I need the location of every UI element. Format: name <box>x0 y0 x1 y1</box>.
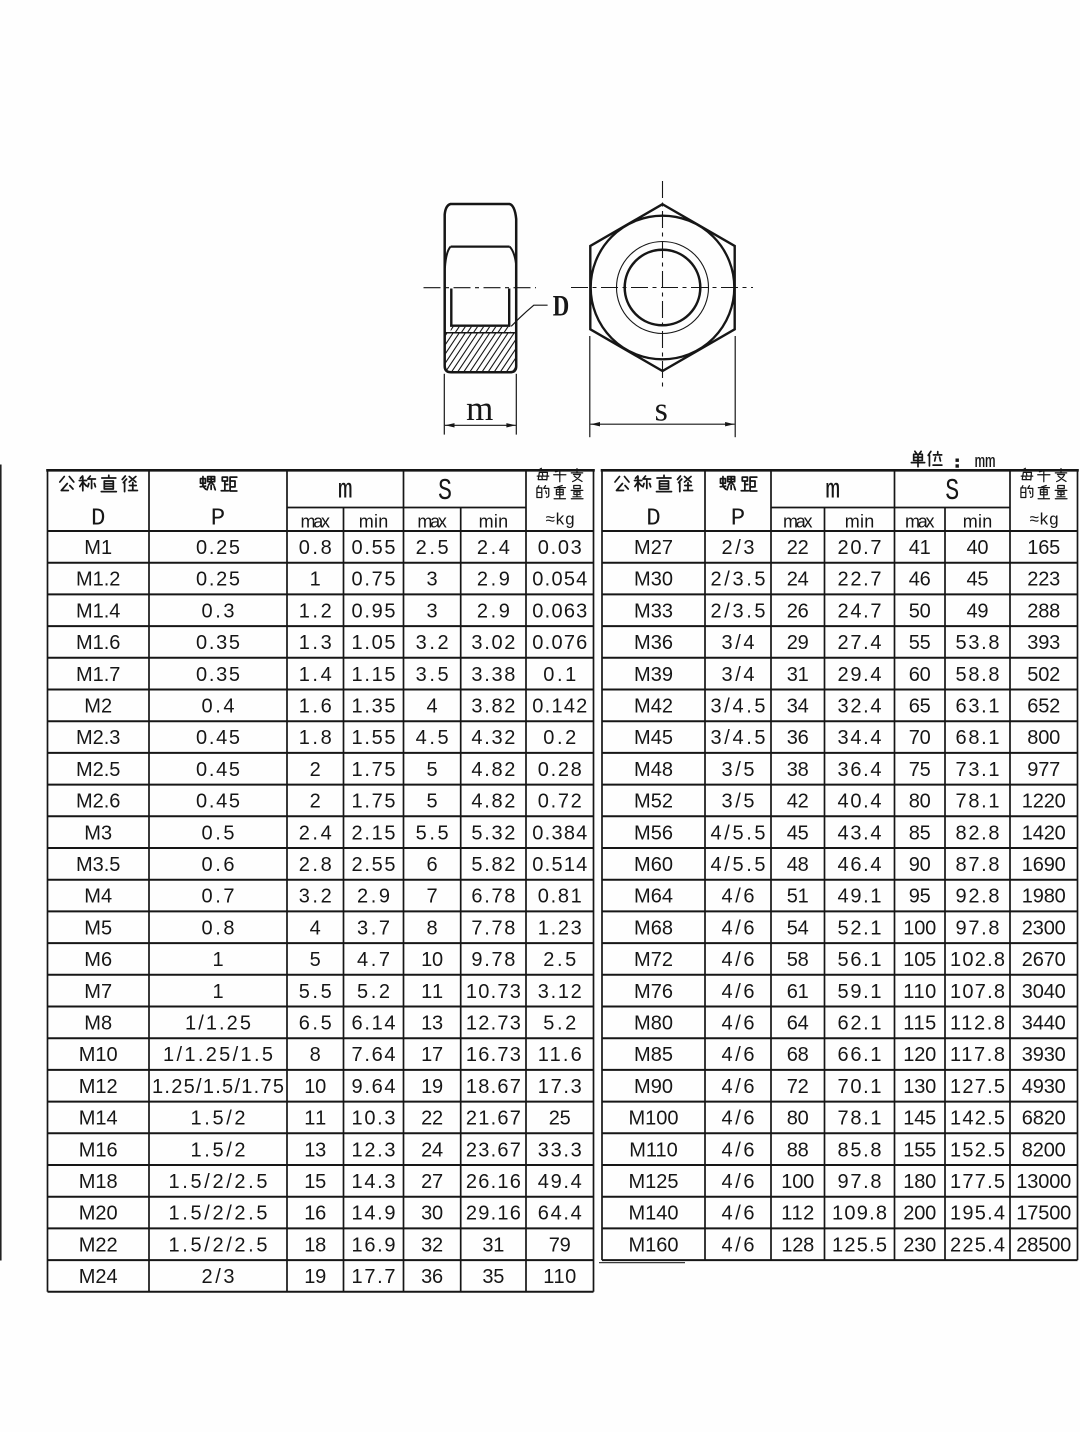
svg-text:68: 68 <box>787 1044 809 1066</box>
svg-text:5: 5 <box>427 791 438 813</box>
svg-text:3/4: 3/4 <box>722 632 755 654</box>
svg-text:5.2: 5.2 <box>357 981 390 1003</box>
svg-text:0.8: 0.8 <box>299 537 332 559</box>
svg-text:2/3.5: 2/3.5 <box>711 600 766 622</box>
svg-text:200: 200 <box>903 1203 936 1225</box>
svg-text:3.7: 3.7 <box>357 917 390 939</box>
svg-text:125.5: 125.5 <box>832 1234 887 1256</box>
svg-text:m: m <box>825 476 840 507</box>
svg-text:60: 60 <box>909 664 931 686</box>
svg-text:17: 17 <box>421 1044 443 1066</box>
svg-text:24.7: 24.7 <box>838 600 882 622</box>
svg-text:1.5/2/2.5: 1.5/2/2.5 <box>169 1234 268 1256</box>
svg-text:49: 49 <box>967 600 989 622</box>
svg-text:1.55: 1.55 <box>352 727 396 749</box>
svg-text:0.063: 0.063 <box>532 600 587 622</box>
svg-text:4/5.5: 4/5.5 <box>711 854 766 876</box>
svg-text:13: 13 <box>421 1013 443 1035</box>
svg-text:40.4: 40.4 <box>838 791 882 813</box>
svg-text:D: D <box>646 506 660 533</box>
svg-text:3/4: 3/4 <box>722 664 755 686</box>
svg-text:27: 27 <box>421 1171 443 1193</box>
svg-text:8: 8 <box>427 917 438 939</box>
svg-text:55: 55 <box>909 632 931 654</box>
svg-text:M100: M100 <box>628 1108 678 1130</box>
svg-text:M76: M76 <box>634 981 673 1003</box>
svg-text:97.8: 97.8 <box>956 917 1000 939</box>
svg-text:36: 36 <box>421 1266 443 1288</box>
svg-text:2.5: 2.5 <box>416 537 449 559</box>
svg-text:34.4: 34.4 <box>838 727 882 749</box>
svg-text:4/6: 4/6 <box>722 1108 755 1130</box>
svg-text:0.81: 0.81 <box>538 886 582 908</box>
svg-text:14.3: 14.3 <box>352 1171 396 1193</box>
svg-text:M30: M30 <box>634 569 673 591</box>
svg-text:3/4.5: 3/4.5 <box>711 696 766 718</box>
svg-text:11: 11 <box>304 1108 326 1130</box>
svg-text:2.9: 2.9 <box>477 569 510 591</box>
svg-text:100: 100 <box>781 1171 814 1193</box>
svg-text:10: 10 <box>421 949 443 971</box>
svg-text:0.45: 0.45 <box>196 791 240 813</box>
svg-text:0.514: 0.514 <box>532 854 587 876</box>
svg-text:51: 51 <box>787 886 809 908</box>
svg-text:max: max <box>905 512 935 532</box>
svg-text:3.12: 3.12 <box>538 981 582 1003</box>
svg-text:4/6: 4/6 <box>722 1171 755 1193</box>
svg-text:M42: M42 <box>634 696 673 718</box>
svg-text:M16: M16 <box>79 1139 118 1161</box>
svg-text:M1: M1 <box>84 537 112 559</box>
svg-text:0.6: 0.6 <box>202 854 235 876</box>
svg-text:4.82: 4.82 <box>471 791 515 813</box>
svg-text:17.3: 17.3 <box>538 1076 582 1098</box>
svg-text:70.1: 70.1 <box>838 1076 882 1098</box>
svg-text:120: 120 <box>903 1044 936 1066</box>
svg-text:29.4: 29.4 <box>838 664 882 686</box>
svg-text:2: 2 <box>310 759 321 781</box>
svg-text:0.5: 0.5 <box>202 822 235 844</box>
svg-text:225.4: 225.4 <box>950 1234 1005 1256</box>
svg-text:78.1: 78.1 <box>838 1108 882 1130</box>
svg-text:min: min <box>845 512 875 532</box>
svg-text:M56: M56 <box>634 822 673 844</box>
svg-text:54: 54 <box>787 917 809 939</box>
svg-text:223: 223 <box>1027 569 1060 591</box>
svg-text:2300: 2300 <box>1022 917 1066 939</box>
svg-text:100: 100 <box>903 917 936 939</box>
svg-text:70: 70 <box>909 727 931 749</box>
svg-text:M7: M7 <box>84 981 112 1003</box>
svg-text:1.8: 1.8 <box>299 727 332 749</box>
svg-text:6820: 6820 <box>1022 1108 1066 1130</box>
svg-text:0.25: 0.25 <box>196 537 240 559</box>
svg-text:min: min <box>479 512 509 532</box>
svg-text:2.9: 2.9 <box>357 886 390 908</box>
svg-text:24: 24 <box>787 569 809 591</box>
svg-text:17500: 17500 <box>1016 1203 1071 1225</box>
svg-text:32: 32 <box>421 1234 443 1256</box>
svg-text:5: 5 <box>310 949 321 971</box>
svg-text:4/6: 4/6 <box>722 1139 755 1161</box>
svg-text:M10: M10 <box>79 1044 118 1066</box>
svg-text:4/5.5: 4/5.5 <box>711 822 766 844</box>
svg-text:8: 8 <box>310 1044 321 1066</box>
svg-text:80: 80 <box>787 1108 809 1130</box>
svg-text:M72: M72 <box>634 949 673 971</box>
svg-text:M27: M27 <box>634 537 673 559</box>
svg-text:27.4: 27.4 <box>838 632 882 654</box>
svg-text:4: 4 <box>310 917 321 939</box>
svg-text:31: 31 <box>482 1234 504 1256</box>
svg-text:26: 26 <box>787 600 809 622</box>
svg-text:M45: M45 <box>634 727 673 749</box>
svg-text:1.5/2: 1.5/2 <box>191 1139 246 1161</box>
svg-text:7.78: 7.78 <box>471 917 515 939</box>
svg-text:65: 65 <box>909 696 931 718</box>
svg-text:D: D <box>553 290 570 323</box>
svg-text:35: 35 <box>482 1266 504 1288</box>
svg-text:0.054: 0.054 <box>532 569 587 591</box>
svg-text:393: 393 <box>1027 632 1060 654</box>
svg-text:M64: M64 <box>634 886 673 908</box>
svg-text:19: 19 <box>304 1266 326 1288</box>
svg-text:1: 1 <box>310 569 321 591</box>
svg-text:105: 105 <box>903 949 936 971</box>
svg-text:130: 130 <box>903 1076 936 1098</box>
svg-text:3: 3 <box>427 569 438 591</box>
svg-text:0.55: 0.55 <box>352 537 396 559</box>
svg-text:107.8: 107.8 <box>950 981 1005 1003</box>
svg-text:58.8: 58.8 <box>956 664 1000 686</box>
svg-text:1.75: 1.75 <box>352 791 396 813</box>
svg-text:m: m <box>338 476 353 507</box>
svg-text:≈kg: ≈kg <box>1029 512 1058 531</box>
svg-text:25: 25 <box>549 1108 571 1130</box>
svg-text:177.5: 177.5 <box>950 1171 1005 1193</box>
svg-text:5: 5 <box>427 759 438 781</box>
svg-text:M14: M14 <box>79 1108 118 1130</box>
svg-text:32.4: 32.4 <box>838 696 882 718</box>
svg-text:800: 800 <box>1027 727 1060 749</box>
svg-text:34: 34 <box>787 696 809 718</box>
svg-text:66.1: 66.1 <box>838 1044 882 1066</box>
svg-text:M12: M12 <box>79 1076 118 1098</box>
svg-text:7: 7 <box>427 886 438 908</box>
svg-text:3.2: 3.2 <box>416 632 449 654</box>
svg-text:49.4: 49.4 <box>538 1171 582 1193</box>
svg-text:112: 112 <box>781 1203 814 1225</box>
svg-text:3.2: 3.2 <box>299 886 332 908</box>
svg-text:0.4: 0.4 <box>202 696 235 718</box>
svg-text:29.16: 29.16 <box>466 1203 521 1225</box>
svg-text:6.14: 6.14 <box>352 1013 396 1035</box>
svg-text:0.35: 0.35 <box>196 664 240 686</box>
svg-text:16: 16 <box>304 1203 326 1225</box>
svg-text:M18: M18 <box>79 1171 118 1193</box>
svg-text:4/6: 4/6 <box>722 1234 755 1256</box>
svg-text:M6: M6 <box>84 949 112 971</box>
svg-text:29: 29 <box>787 632 809 654</box>
svg-text:1690: 1690 <box>1022 854 1066 876</box>
svg-text:6.78: 6.78 <box>471 886 515 908</box>
svg-text:75: 75 <box>909 759 931 781</box>
svg-text:9.64: 9.64 <box>352 1076 396 1098</box>
svg-text:3/4.5: 3/4.5 <box>711 727 766 749</box>
svg-text:M2.5: M2.5 <box>76 759 120 781</box>
svg-text:M68: M68 <box>634 917 673 939</box>
svg-text:58: 58 <box>787 949 809 971</box>
svg-text:5.32: 5.32 <box>471 822 515 844</box>
svg-text:M4: M4 <box>84 886 112 908</box>
svg-text:17.7: 17.7 <box>352 1266 396 1288</box>
svg-text:10.3: 10.3 <box>352 1108 396 1130</box>
svg-text:288: 288 <box>1027 600 1060 622</box>
svg-text:1.15: 1.15 <box>352 664 396 686</box>
svg-text:1.3: 1.3 <box>299 632 332 654</box>
svg-text:M85: M85 <box>634 1044 673 1066</box>
svg-text:3.38: 3.38 <box>471 664 515 686</box>
svg-text:79: 79 <box>549 1234 571 1256</box>
svg-text:502: 502 <box>1027 664 1060 686</box>
svg-text:1: 1 <box>212 981 223 1003</box>
svg-text:6.5: 6.5 <box>299 1013 332 1035</box>
svg-text:M110: M110 <box>629 1139 678 1161</box>
svg-text:50: 50 <box>909 600 931 622</box>
svg-text:2.4: 2.4 <box>299 822 332 844</box>
svg-text:38: 38 <box>787 759 809 781</box>
svg-text:1.05: 1.05 <box>352 632 396 654</box>
svg-text:1.4: 1.4 <box>299 664 332 686</box>
svg-text:43.4: 43.4 <box>838 822 882 844</box>
svg-text:68.1: 68.1 <box>956 727 1000 749</box>
svg-text:92.8: 92.8 <box>956 886 1000 908</box>
svg-text:85.8: 85.8 <box>838 1139 882 1161</box>
svg-text:78.1: 78.1 <box>956 791 1000 813</box>
svg-text:1.2: 1.2 <box>299 600 332 622</box>
svg-text:2.4: 2.4 <box>477 537 510 559</box>
svg-text:1.75: 1.75 <box>352 759 396 781</box>
svg-text:0.25: 0.25 <box>196 569 240 591</box>
svg-text:M160: M160 <box>628 1234 678 1256</box>
svg-text:49.1: 49.1 <box>838 886 882 908</box>
svg-text:1.23: 1.23 <box>538 917 582 939</box>
svg-text:1980: 1980 <box>1022 886 1066 908</box>
svg-text:2.5: 2.5 <box>543 949 576 971</box>
svg-text:4/6: 4/6 <box>722 1076 755 1098</box>
svg-text:61: 61 <box>787 981 809 1003</box>
svg-text:110: 110 <box>543 1266 576 1288</box>
svg-text:4/6: 4/6 <box>722 1013 755 1035</box>
svg-text:M22: M22 <box>79 1234 118 1256</box>
svg-text:M8: M8 <box>84 1013 112 1035</box>
svg-text:0.75: 0.75 <box>352 569 396 591</box>
svg-text:M48: M48 <box>634 759 673 781</box>
svg-text:1.35: 1.35 <box>352 696 396 718</box>
svg-text:31: 31 <box>787 664 809 686</box>
svg-text:180: 180 <box>903 1171 936 1193</box>
svg-text:M5: M5 <box>84 917 112 939</box>
svg-text:0.384: 0.384 <box>532 822 587 844</box>
svg-text:3.02: 3.02 <box>471 632 515 654</box>
svg-text:M2: M2 <box>84 696 112 718</box>
svg-text:85: 85 <box>909 822 931 844</box>
svg-text:3/5: 3/5 <box>722 759 755 781</box>
svg-text:4/6: 4/6 <box>722 981 755 1003</box>
svg-text:22.7: 22.7 <box>838 569 882 591</box>
svg-text:S: S <box>945 474 959 509</box>
svg-text:6: 6 <box>427 854 438 876</box>
svg-text:3040: 3040 <box>1022 981 1066 1003</box>
svg-text:4/6: 4/6 <box>722 949 755 971</box>
svg-text:152.5: 152.5 <box>950 1139 1005 1161</box>
svg-text:M52: M52 <box>634 791 673 813</box>
svg-text:4/6: 4/6 <box>722 1044 755 1066</box>
svg-text:112.8: 112.8 <box>950 1013 1005 1035</box>
svg-text:11.6: 11.6 <box>538 1044 582 1066</box>
svg-text:3.82: 3.82 <box>471 696 515 718</box>
svg-text:53.8: 53.8 <box>956 632 1000 654</box>
svg-text:4.5: 4.5 <box>416 727 449 749</box>
svg-text:12.3: 12.3 <box>352 1139 396 1161</box>
svg-text:3930: 3930 <box>1022 1044 1066 1066</box>
svg-text:2.55: 2.55 <box>352 854 396 876</box>
svg-text:24: 24 <box>421 1139 443 1161</box>
svg-text:45: 45 <box>787 822 809 844</box>
svg-text:P: P <box>211 506 225 533</box>
svg-text:M80: M80 <box>634 1013 673 1035</box>
svg-text:M2.3: M2.3 <box>76 727 120 749</box>
svg-text:5.2: 5.2 <box>543 1013 576 1035</box>
svg-text:M125: M125 <box>628 1171 678 1193</box>
svg-text:10: 10 <box>304 1076 326 1098</box>
svg-text:2.15: 2.15 <box>352 822 396 844</box>
svg-text:4930: 4930 <box>1022 1076 1066 1098</box>
svg-text:2/3: 2/3 <box>202 1266 235 1288</box>
svg-text:102.8: 102.8 <box>950 949 1005 971</box>
svg-text:M1.4: M1.4 <box>76 600 120 622</box>
svg-text:97.8: 97.8 <box>838 1171 882 1193</box>
svg-text:M3.5: M3.5 <box>76 854 120 876</box>
svg-text:109.8: 109.8 <box>832 1203 887 1225</box>
svg-text:1220: 1220 <box>1022 791 1066 813</box>
svg-text:165: 165 <box>1027 537 1060 559</box>
svg-text:12.73: 12.73 <box>466 1013 521 1035</box>
svg-text:22: 22 <box>787 537 809 559</box>
svg-text:21.67: 21.67 <box>466 1108 521 1130</box>
svg-text:80: 80 <box>909 791 931 813</box>
svg-text:36.4: 36.4 <box>838 759 882 781</box>
svg-text:0.1: 0.1 <box>543 664 576 686</box>
svg-text:2/3.5: 2/3.5 <box>711 569 766 591</box>
svg-text:52.1: 52.1 <box>838 917 882 939</box>
svg-text:8200: 8200 <box>1022 1139 1066 1161</box>
svg-text:155: 155 <box>903 1139 936 1161</box>
svg-text:1.6: 1.6 <box>299 696 332 718</box>
svg-text:59.1: 59.1 <box>838 981 882 1003</box>
svg-text:M140: M140 <box>628 1203 678 1225</box>
svg-text:2.8: 2.8 <box>299 854 332 876</box>
svg-text:3: 3 <box>427 600 438 622</box>
svg-text:4/6: 4/6 <box>722 886 755 908</box>
svg-text:13: 13 <box>304 1139 326 1161</box>
svg-text:46.4: 46.4 <box>838 854 882 876</box>
svg-text:1420: 1420 <box>1022 822 1066 844</box>
svg-text:M33: M33 <box>634 600 673 622</box>
svg-text:5.5: 5.5 <box>299 981 332 1003</box>
svg-text:M20: M20 <box>79 1203 118 1225</box>
svg-text:82.8: 82.8 <box>956 822 1000 844</box>
svg-text:18.67: 18.67 <box>466 1076 521 1098</box>
svg-text:0.2: 0.2 <box>543 727 576 749</box>
svg-text:33.3: 33.3 <box>538 1139 582 1161</box>
svg-text:min: min <box>359 512 389 532</box>
svg-text:3.5: 3.5 <box>416 664 449 686</box>
svg-text:M36: M36 <box>634 632 673 654</box>
svg-text:73.1: 73.1 <box>956 759 1000 781</box>
svg-text:87.8: 87.8 <box>956 854 1000 876</box>
svg-text:13000: 13000 <box>1016 1171 1071 1193</box>
svg-text:88: 88 <box>787 1139 809 1161</box>
svg-text:M1.6: M1.6 <box>76 632 120 654</box>
svg-text:M3: M3 <box>84 822 112 844</box>
svg-text:23.67: 23.67 <box>466 1139 521 1161</box>
svg-text:56.1: 56.1 <box>838 949 882 971</box>
svg-text:64: 64 <box>787 1013 809 1035</box>
svg-text:20.7: 20.7 <box>838 537 882 559</box>
svg-text:64.4: 64.4 <box>538 1203 582 1225</box>
svg-text:0.7: 0.7 <box>202 886 235 908</box>
svg-text:M90: M90 <box>634 1076 673 1098</box>
svg-text:128: 128 <box>781 1234 814 1256</box>
svg-text:652: 652 <box>1027 696 1060 718</box>
svg-text:4/6: 4/6 <box>722 1203 755 1225</box>
svg-text:230: 230 <box>903 1234 936 1256</box>
svg-text:63.1: 63.1 <box>956 696 1000 718</box>
svg-text:62.1: 62.1 <box>838 1013 882 1035</box>
svg-text:0.28: 0.28 <box>538 759 582 781</box>
svg-text:M1.2: M1.2 <box>76 569 120 591</box>
svg-text:3440: 3440 <box>1022 1013 1066 1035</box>
svg-text:4.32: 4.32 <box>471 727 515 749</box>
svg-text:142.5: 142.5 <box>950 1108 1005 1130</box>
svg-text:0.72: 0.72 <box>538 791 582 813</box>
svg-text:1.5/2/2.5: 1.5/2/2.5 <box>169 1171 268 1193</box>
svg-text:M39: M39 <box>634 664 673 686</box>
svg-text:9.78: 9.78 <box>471 949 515 971</box>
svg-text:4.82: 4.82 <box>471 759 515 781</box>
svg-text:1.25/1.5/1.75: 1.25/1.5/1.75 <box>152 1076 284 1098</box>
svg-text:0.45: 0.45 <box>196 759 240 781</box>
svg-text:max: max <box>783 512 813 532</box>
svg-text:18: 18 <box>304 1234 326 1256</box>
svg-text:0.45: 0.45 <box>196 727 240 749</box>
svg-text:1.5/2: 1.5/2 <box>191 1108 246 1130</box>
svg-text:m: m <box>466 389 493 428</box>
svg-text:5.5: 5.5 <box>416 822 449 844</box>
svg-text:16.73: 16.73 <box>466 1044 521 1066</box>
svg-text:0.35: 0.35 <box>196 632 240 654</box>
svg-text:M60: M60 <box>634 854 673 876</box>
svg-text:19: 19 <box>421 1076 443 1098</box>
svg-text:145: 145 <box>903 1108 936 1130</box>
svg-text:95: 95 <box>909 886 931 908</box>
svg-text:30: 30 <box>421 1203 443 1225</box>
svg-text:M24: M24 <box>79 1266 118 1288</box>
svg-text:115: 115 <box>903 1013 936 1035</box>
svg-text:S: S <box>438 474 452 509</box>
svg-text:4: 4 <box>427 696 438 718</box>
